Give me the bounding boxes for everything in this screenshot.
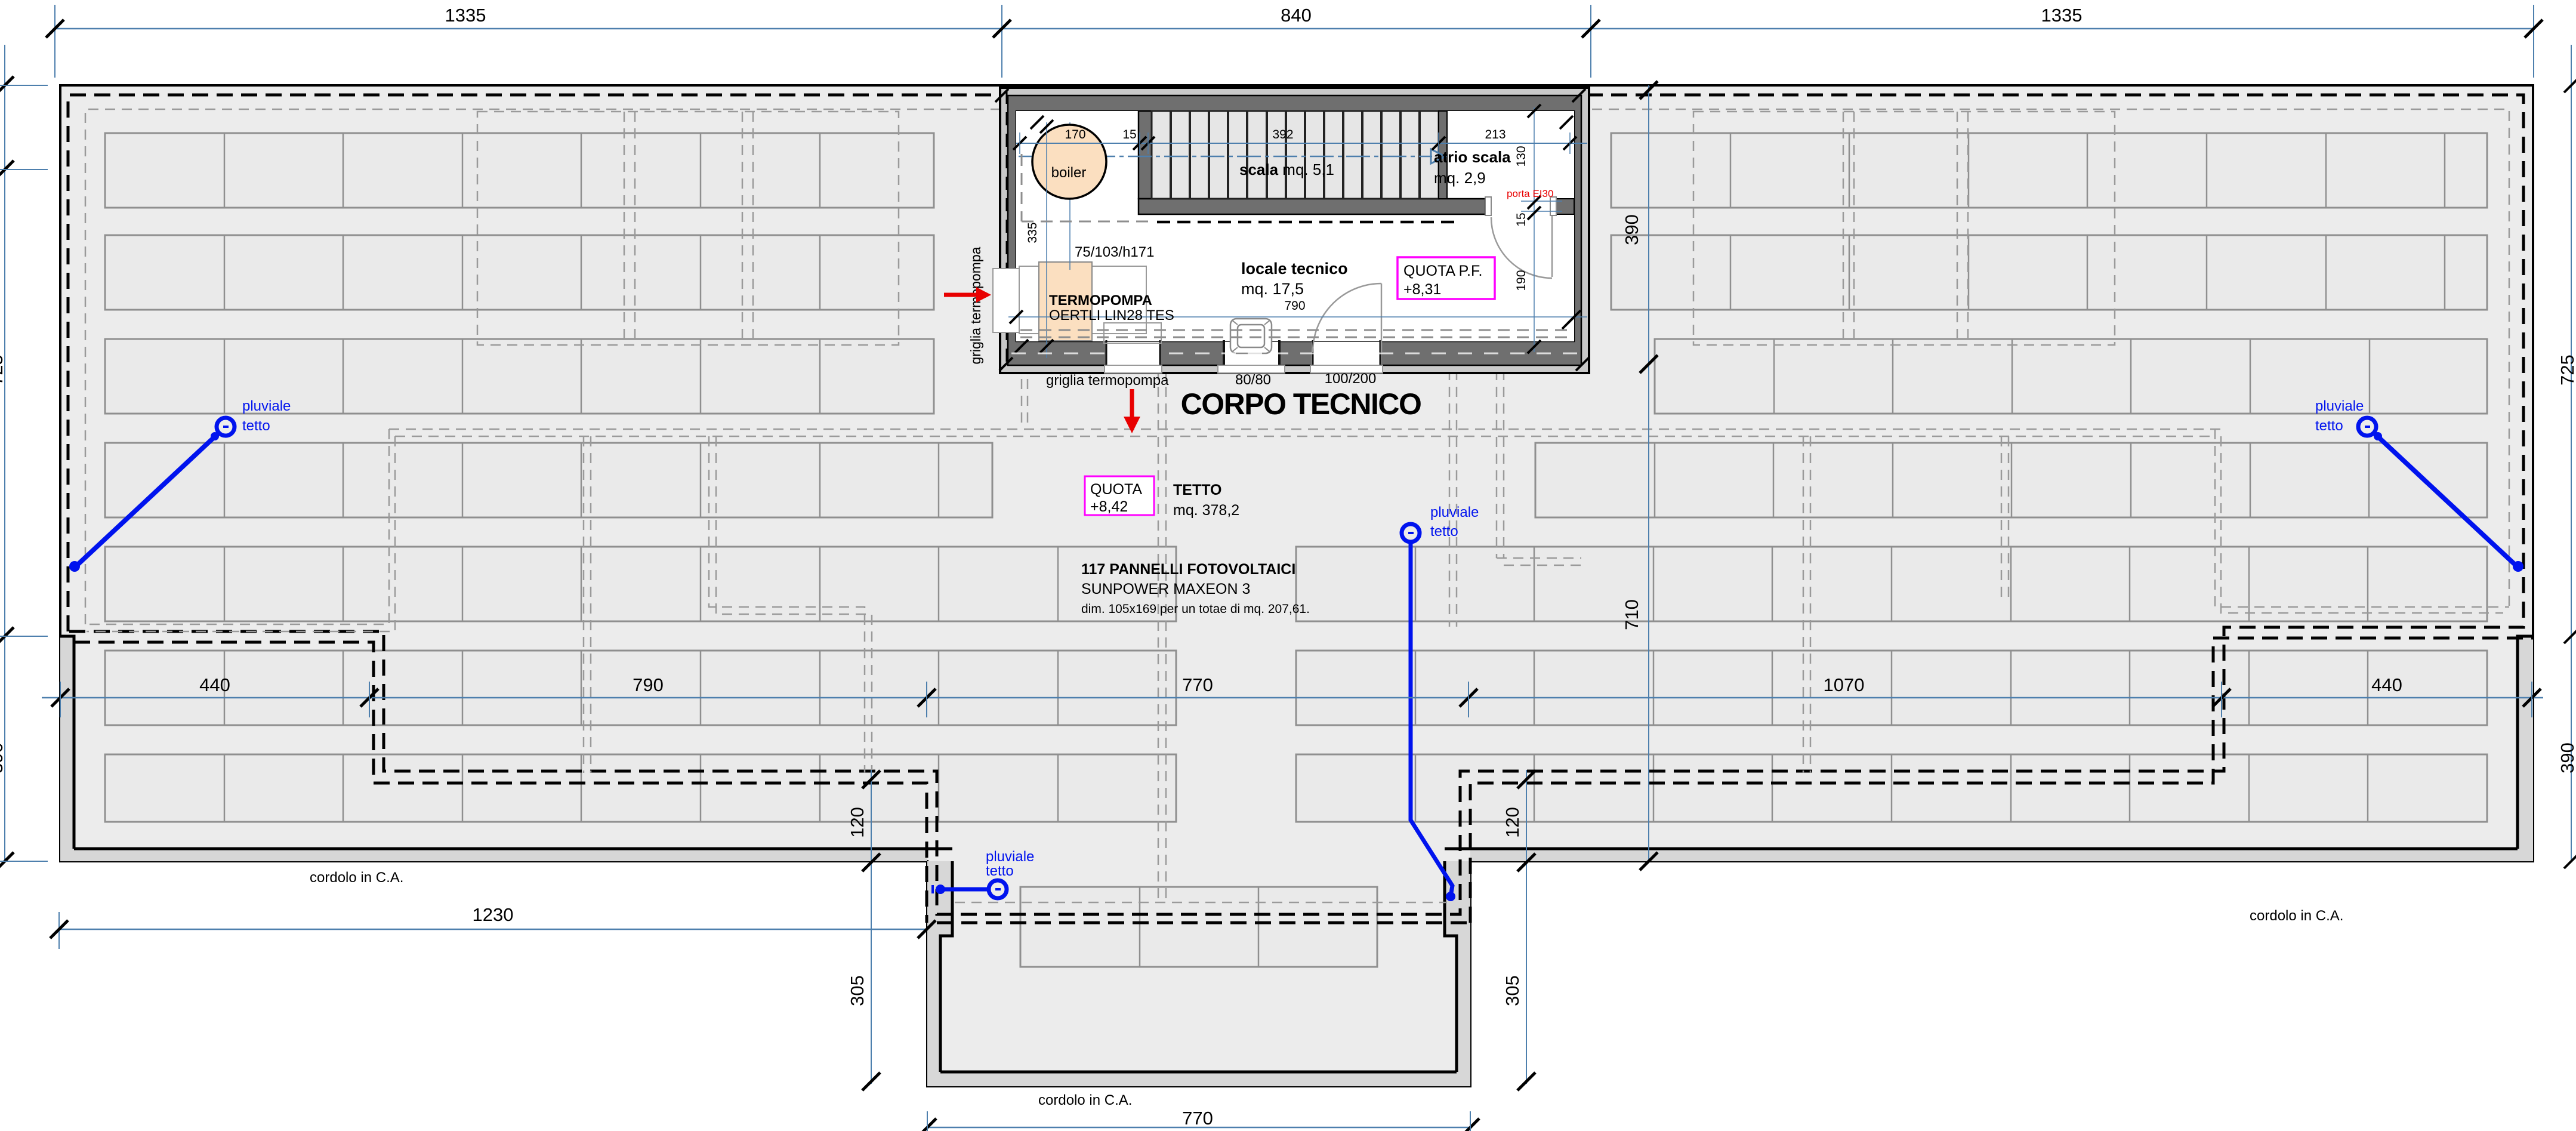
svg-text:15: 15 xyxy=(1122,128,1136,141)
svg-text:tetto: tetto xyxy=(986,863,1014,879)
svg-text:QUOTA P.F.: QUOTA P.F. xyxy=(1403,263,1482,279)
svg-text:170: 170 xyxy=(1065,128,1085,141)
svg-text:790: 790 xyxy=(633,674,664,695)
svg-text:porta EI30: porta EI30 xyxy=(1507,188,1553,199)
svg-text:130: 130 xyxy=(1514,146,1528,167)
svg-text:440: 440 xyxy=(2371,674,2402,695)
svg-text:15: 15 xyxy=(1514,212,1528,226)
svg-text:griglia termopompa: griglia termopompa xyxy=(968,246,983,364)
svg-text:cordolo in C.A.: cordolo in C.A. xyxy=(2250,908,2343,924)
svg-text:117 PANNELLI FOTOVOLTAICI: 117 PANNELLI FOTOVOLTAICI xyxy=(1081,561,1295,578)
svg-text:pluviale: pluviale xyxy=(242,398,291,414)
svg-text:335: 335 xyxy=(1026,222,1039,243)
svg-text:cordolo in C.A.: cordolo in C.A. xyxy=(1038,1092,1132,1108)
svg-text:770: 770 xyxy=(1182,1108,1213,1129)
svg-text:1335: 1335 xyxy=(2041,5,2083,26)
svg-text:CORPO TECNICO: CORPO TECNICO xyxy=(1181,387,1421,421)
svg-text:75/103/h171: 75/103/h171 xyxy=(1075,244,1154,260)
svg-text:725: 725 xyxy=(2557,355,2576,386)
svg-text:790: 790 xyxy=(1284,299,1305,313)
svg-text:190: 190 xyxy=(1514,270,1528,291)
svg-text:80/80: 80/80 xyxy=(1235,372,1271,388)
svg-text:cordolo in C.A.: cordolo in C.A. xyxy=(310,870,403,886)
svg-text:mq. 2,9: mq. 2,9 xyxy=(1434,169,1486,187)
svg-text:213: 213 xyxy=(1485,128,1506,141)
svg-text:pluviale: pluviale xyxy=(1430,504,1479,520)
svg-text:440: 440 xyxy=(199,674,230,695)
svg-text:tetto: tetto xyxy=(2315,418,2343,434)
svg-text:305: 305 xyxy=(847,975,868,1006)
svg-text:pluviale: pluviale xyxy=(986,849,1034,865)
svg-text:392: 392 xyxy=(1272,128,1293,141)
svg-text:390: 390 xyxy=(0,742,7,773)
svg-text:305: 305 xyxy=(1502,975,1523,1006)
svg-text:mq. 378,2: mq. 378,2 xyxy=(1173,502,1239,519)
svg-text:atrio scala: atrio scala xyxy=(1434,148,1511,166)
svg-text:scala mq. 5,1: scala mq. 5,1 xyxy=(1239,161,1334,178)
svg-text:QUOTA: QUOTA xyxy=(1090,481,1142,498)
svg-text:1070: 1070 xyxy=(1824,674,1865,695)
svg-text:tetto: tetto xyxy=(1430,523,1458,540)
svg-text:boiler: boiler xyxy=(1051,165,1087,181)
svg-text:locale tecnico: locale tecnico xyxy=(1241,260,1348,278)
svg-text:1230: 1230 xyxy=(473,904,514,925)
svg-text:TETTO: TETTO xyxy=(1173,482,1221,498)
svg-text:100/200: 100/200 xyxy=(1325,371,1377,387)
svg-text:725: 725 xyxy=(0,355,7,386)
svg-text:TERMOPOMPA: TERMOPOMPA xyxy=(1049,292,1152,309)
svg-text:710: 710 xyxy=(1621,599,1642,630)
svg-text:SUNPOWER MAXEON 3: SUNPOWER MAXEON 3 xyxy=(1081,581,1250,597)
svg-text:OERTLI LIN28 TES: OERTLI LIN28 TES xyxy=(1049,307,1174,323)
svg-text:1335: 1335 xyxy=(445,5,486,26)
svg-text:griglia termopompa: griglia termopompa xyxy=(1046,372,1169,389)
svg-text:+8,42: +8,42 xyxy=(1090,498,1128,515)
svg-text:pluviale: pluviale xyxy=(2315,398,2364,414)
svg-text:tetto: tetto xyxy=(242,418,270,434)
svg-text:390: 390 xyxy=(1621,214,1642,245)
svg-text:840: 840 xyxy=(1281,5,1312,26)
svg-text:dim. 105x169 per un totae di m: dim. 105x169 per un totae di mq. 207,61. xyxy=(1081,602,1310,616)
svg-text:390: 390 xyxy=(2557,742,2576,773)
svg-text:mq. 17,5: mq. 17,5 xyxy=(1241,280,1304,298)
svg-text:+8,31: +8,31 xyxy=(1403,281,1441,298)
svg-text:770: 770 xyxy=(1182,674,1213,695)
svg-text:120: 120 xyxy=(1502,807,1523,838)
svg-text:120: 120 xyxy=(847,807,868,838)
